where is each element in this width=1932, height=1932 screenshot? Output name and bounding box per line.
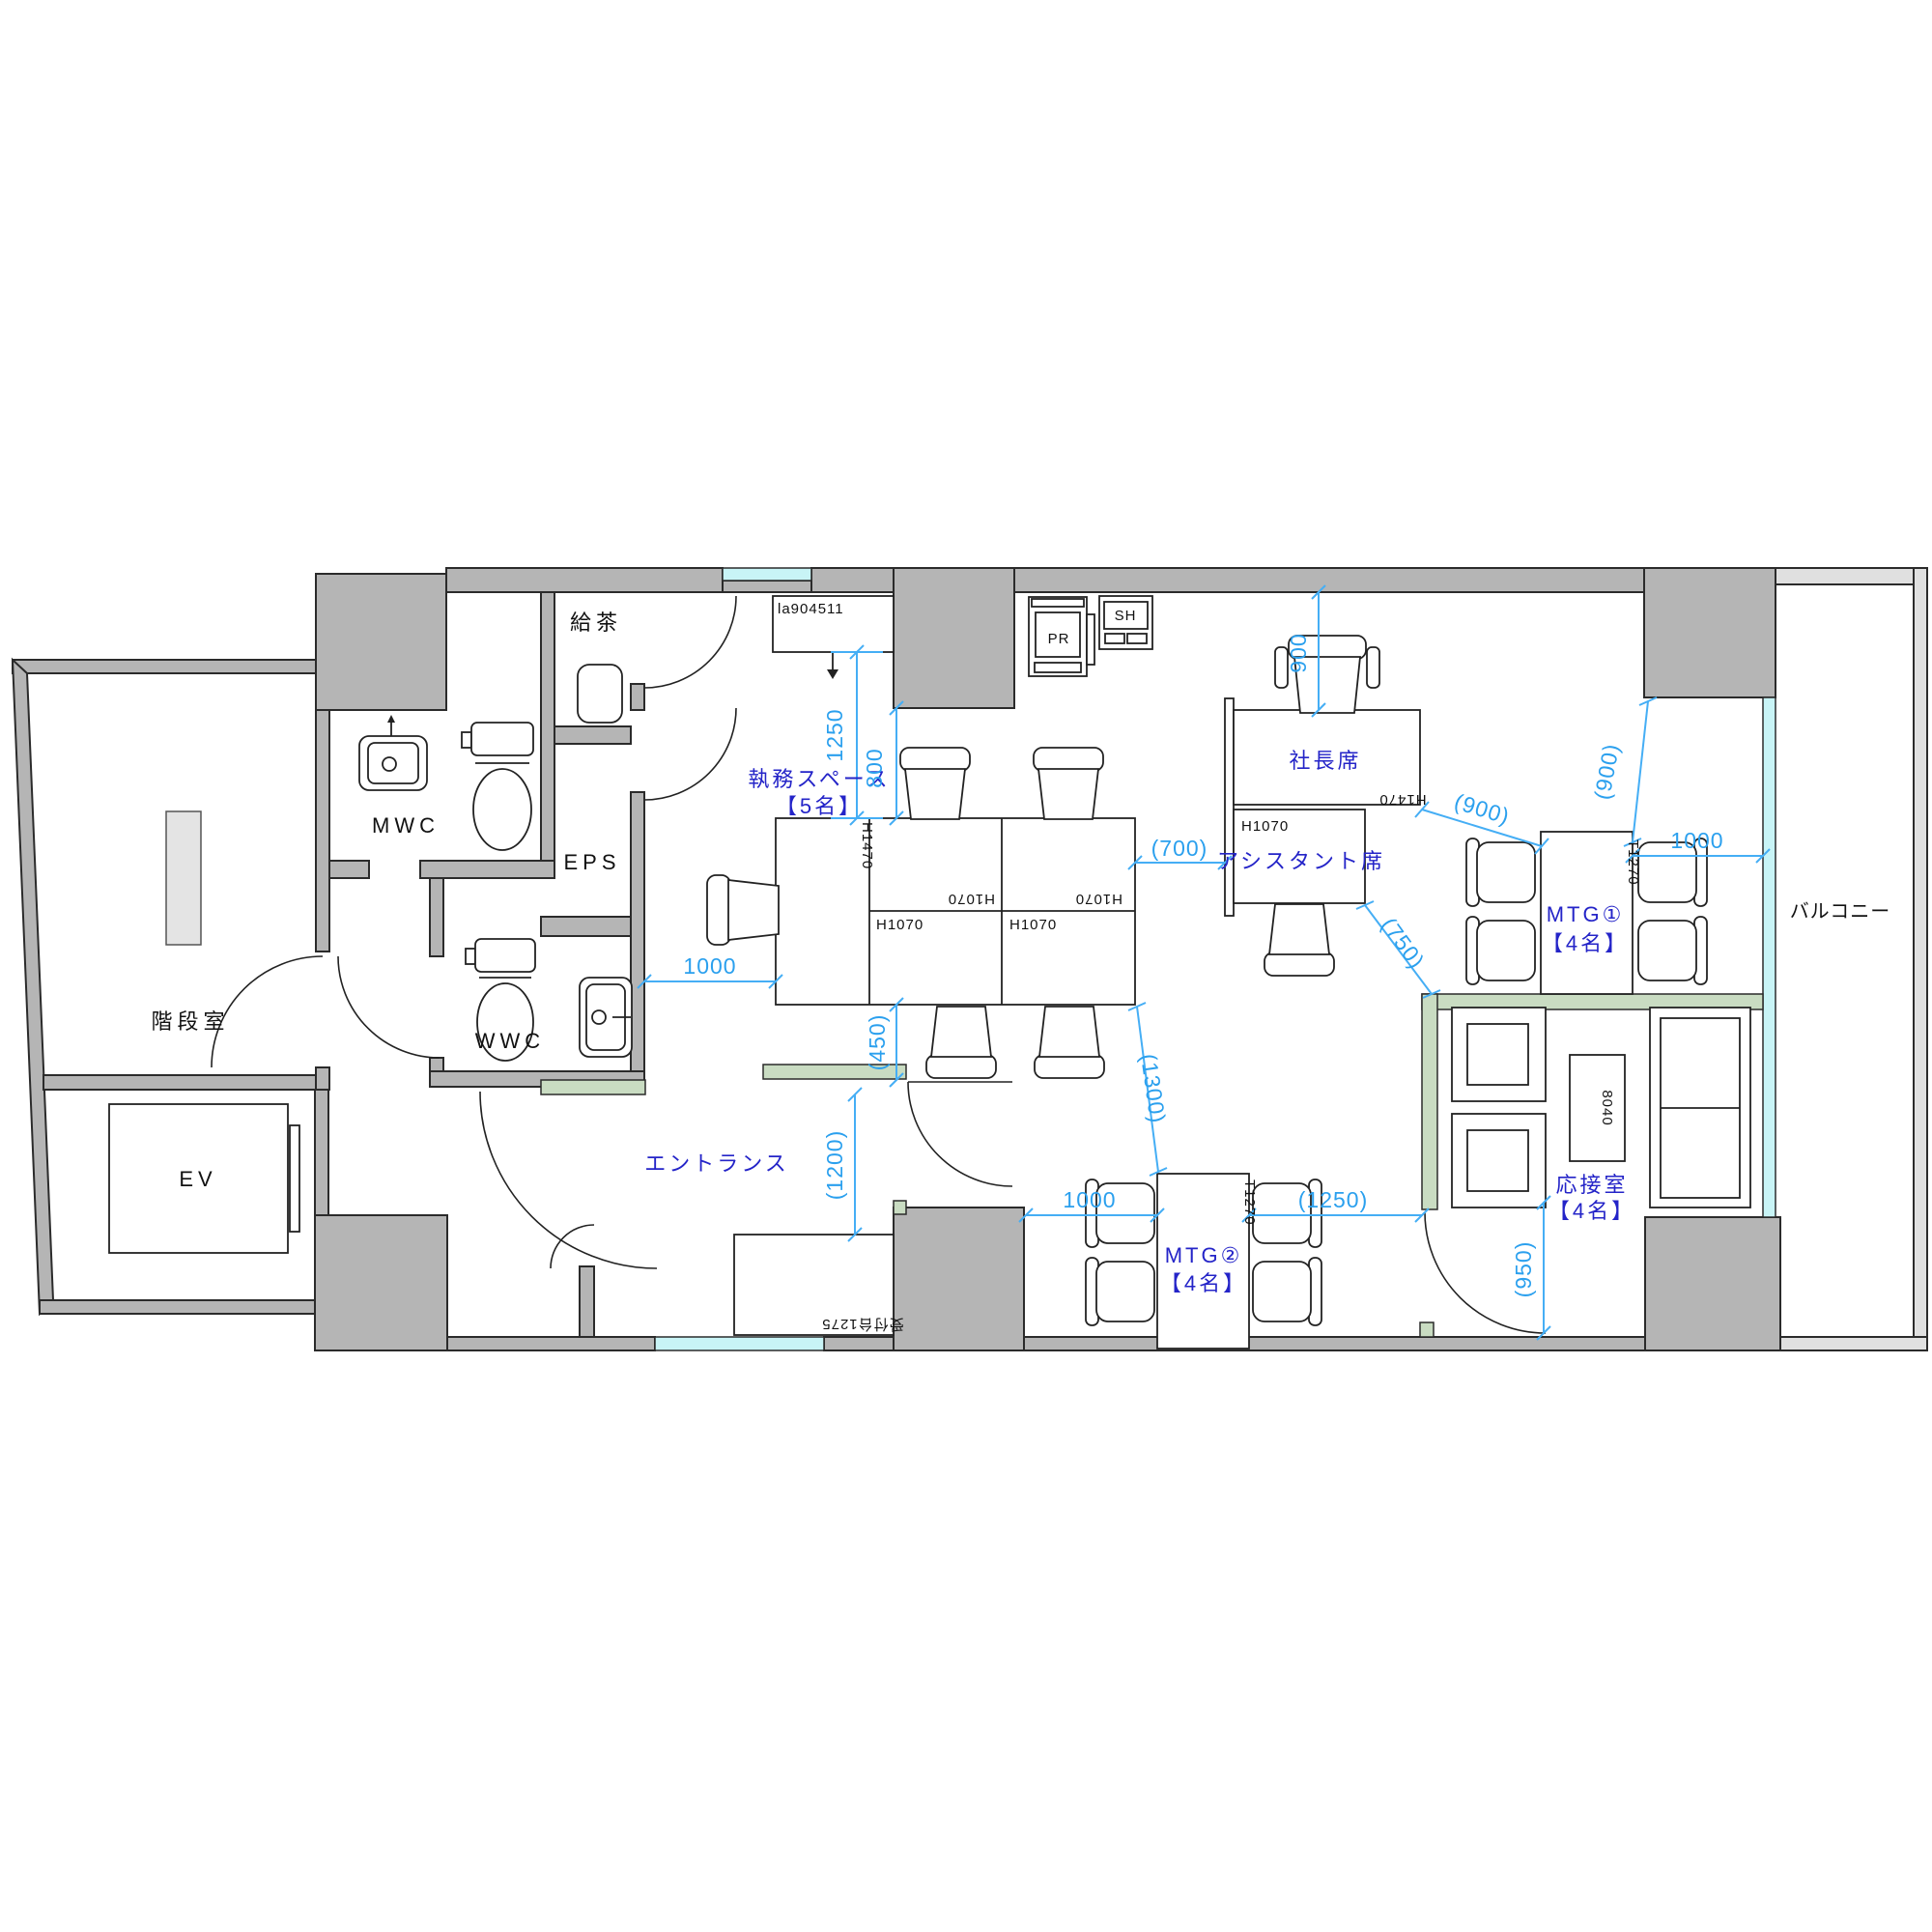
reception-wall-left	[1422, 994, 1437, 1209]
window-bottom	[655, 1337, 824, 1350]
room-label-balcony: バルコニー	[1790, 901, 1891, 923]
workspace-desk-bank	[776, 818, 1135, 1005]
floor-plan-canvas: 階段室 EV MWC WWC EPS 給茶 エントランス 執務スペース 【5名】…	[0, 0, 1932, 1932]
dim-950: (950)	[1511, 1241, 1536, 1298]
label-panel-h1070: H1070	[1009, 917, 1057, 933]
dim-1000: 1000	[1063, 1187, 1116, 1212]
room-label-mwc: MWC	[372, 813, 440, 838]
dim-1200: (1200)	[822, 1130, 847, 1200]
label-printer: PR	[1048, 631, 1070, 647]
room-label-mtg2: MTG②	[1165, 1243, 1243, 1267]
room-label-mtg1: MTG①	[1547, 902, 1625, 926]
label-panel-h1070: H1070	[1075, 891, 1122, 907]
office-chair	[926, 1007, 996, 1078]
label-reception-counter: 受付台1275	[821, 1316, 903, 1332]
stairs	[166, 811, 201, 945]
room-label-stairwell: 階段室	[151, 1009, 229, 1034]
dim-1000: 1000	[1670, 828, 1723, 853]
pillar-top-left	[316, 574, 446, 710]
wwc-sink	[580, 978, 632, 1057]
svg-text:【4名】: 【4名】	[1160, 1271, 1247, 1295]
label-table-t1270: T1270	[1241, 1179, 1258, 1226]
reception-sofa	[1650, 1008, 1750, 1207]
room-label-wwc: WWC	[475, 1029, 545, 1053]
svg-text:【5名】: 【5名】	[776, 794, 863, 818]
room-label-reception: 応接室	[1555, 1173, 1628, 1197]
label-table-t1270: T1270	[1625, 839, 1641, 886]
dim-1250p: (1250)	[1298, 1187, 1368, 1212]
dim-900: 900	[1286, 633, 1311, 672]
room-label-entrance: エントランス	[644, 1151, 789, 1176]
label-desk-h1470: H1470	[1378, 791, 1426, 808]
label-panel-h1070: H1070	[948, 891, 995, 907]
label-panel-h1070: H1070	[876, 917, 923, 933]
meeting-chair	[1253, 1258, 1321, 1325]
office-chair	[707, 875, 779, 945]
dim-800: 800	[862, 748, 887, 787]
elevator-door	[290, 1125, 299, 1232]
desk-partition-panel	[1225, 698, 1234, 916]
pillar-bottom-left	[315, 1215, 447, 1350]
pillar-top-mid	[894, 568, 1014, 708]
meeting-chair	[1638, 917, 1707, 984]
label-shelf: SH	[1115, 608, 1137, 624]
svg-text:【4名】: 【4名】	[1548, 1199, 1635, 1223]
dim-1250: 1250	[822, 708, 847, 761]
dim-450: (450)	[865, 1014, 890, 1071]
meeting-chair	[1466, 917, 1535, 984]
label-panel-h1070: H1070	[1241, 818, 1289, 835]
meeting-chair	[1466, 838, 1535, 906]
room-label-eps: EPS	[563, 850, 620, 874]
meeting-chair	[1086, 1258, 1154, 1325]
svg-text:【4名】: 【4名】	[1542, 931, 1629, 955]
dim-700: (700)	[1151, 836, 1208, 861]
tea-room-sink	[578, 665, 622, 723]
label-cabinet-code: la904511	[778, 601, 844, 617]
office-chair	[1035, 1007, 1104, 1078]
pillar-bottom-right	[1645, 1217, 1780, 1350]
reception-armchair	[1452, 1114, 1546, 1207]
reception-armchair	[1452, 1008, 1546, 1101]
balcony-wall-top	[1776, 568, 1927, 584]
balcony-wall-bottom	[1780, 1337, 1927, 1350]
label-panel-h1470: H1470	[859, 822, 875, 869]
room-label-elevator: EV	[179, 1167, 216, 1191]
entrance-door-stub	[580, 1266, 594, 1337]
room-label-assistant: アシスタント席	[1217, 849, 1385, 873]
label-coffee-table: 8040	[1599, 1090, 1615, 1125]
office-chair	[900, 748, 970, 819]
room-label-tea-room: 給茶	[570, 611, 622, 635]
assistant-chair	[1264, 904, 1334, 976]
pillar-top-right	[1644, 568, 1776, 697]
dim-1000: 1000	[683, 953, 736, 979]
office-chair	[1034, 748, 1103, 819]
reception-coffee-table	[1570, 1055, 1625, 1161]
room-label-president: 社長席	[1289, 749, 1361, 773]
window-top	[723, 568, 811, 581]
balcony-wall-right	[1914, 568, 1927, 1350]
balcony-glass-wall	[1763, 697, 1776, 1217]
pillar-bottom-mid	[894, 1207, 1024, 1350]
